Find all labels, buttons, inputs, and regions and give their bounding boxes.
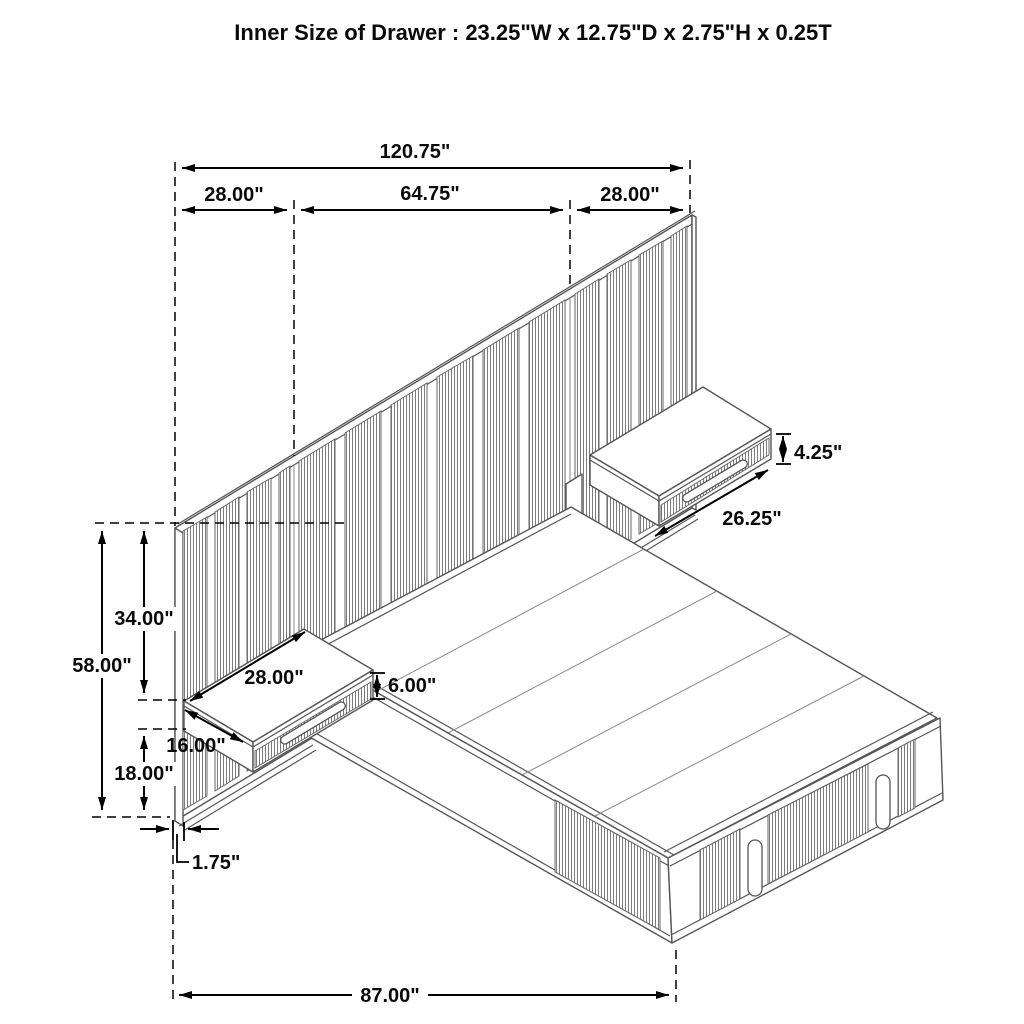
sheet-title: Inner Size of Drawer : 23.25"W x 12.75"D…: [234, 20, 832, 45]
dim-label-shelf-depth: 16.00": [166, 735, 226, 757]
slat-band: [183, 517, 207, 810]
dim-label-bed-span: 87.00": [360, 985, 420, 1007]
slat-band: [607, 260, 631, 553]
drawing-sheet: 120.75" 28.00" 64.75" 28.00" 4.25" 26.25…: [0, 0, 1024, 1024]
dim-label-overall-width: 120.75": [380, 141, 451, 163]
dim-label-upper-height: 34.00": [114, 608, 174, 630]
dim-label-panel-thickness: 1.75": [192, 852, 240, 874]
dim-label-left-shelf-width: 28.00": [244, 667, 304, 689]
dim-label-shelf-box-height: 6.00": [388, 675, 436, 697]
dim-label-lower-clearance: 18.00": [114, 763, 174, 785]
dim-label-right-shelf-width: 26.25": [722, 508, 782, 530]
dim-label-total-height: 58.00": [72, 655, 132, 677]
dim-label-right-section: 28.00": [600, 184, 660, 206]
footboard-drawer-handle: [876, 775, 890, 829]
dim-label-left-section: 28.00": [204, 184, 264, 206]
footboard-drawer-slats: [898, 739, 915, 817]
footboard-drawer-handle: [748, 840, 762, 896]
dim-label-right-shelf-height: 4.25": [794, 442, 842, 464]
bed-dimension-diagram: 120.75" 28.00" 64.75" 28.00" 4.25" 26.25…: [0, 0, 1024, 1024]
dim-label-center-section: 64.75": [400, 183, 460, 205]
